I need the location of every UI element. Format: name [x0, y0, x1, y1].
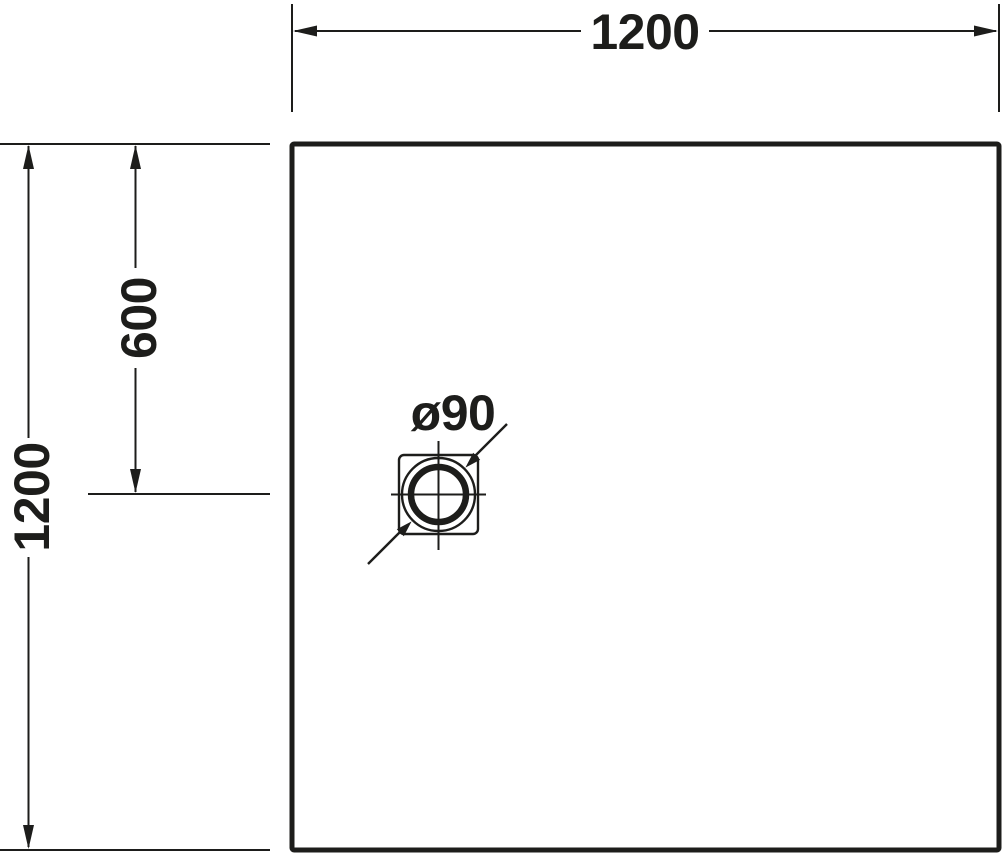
arrowhead-width-right [974, 26, 998, 37]
arrowhead-width-left [293, 26, 317, 37]
drain-leader-line-lower [368, 529, 403, 564]
arrowhead-offset-bottom [130, 469, 141, 493]
dimension-height-label: 1200 [4, 442, 60, 551]
drawing-svg: 1200 1200 600 ø90 [0, 0, 1002, 854]
arrowhead-offset-top [130, 145, 141, 169]
dimension-offset-label: 600 [111, 277, 167, 359]
dimension-width-label: 1200 [590, 4, 699, 60]
dimension-drawing-canvas: 1200 1200 600 ø90 [0, 0, 1002, 854]
drain-diameter-label: ø90 [411, 385, 496, 441]
arrowhead-height-top [23, 145, 34, 169]
arrowhead-height-bottom [23, 825, 34, 849]
